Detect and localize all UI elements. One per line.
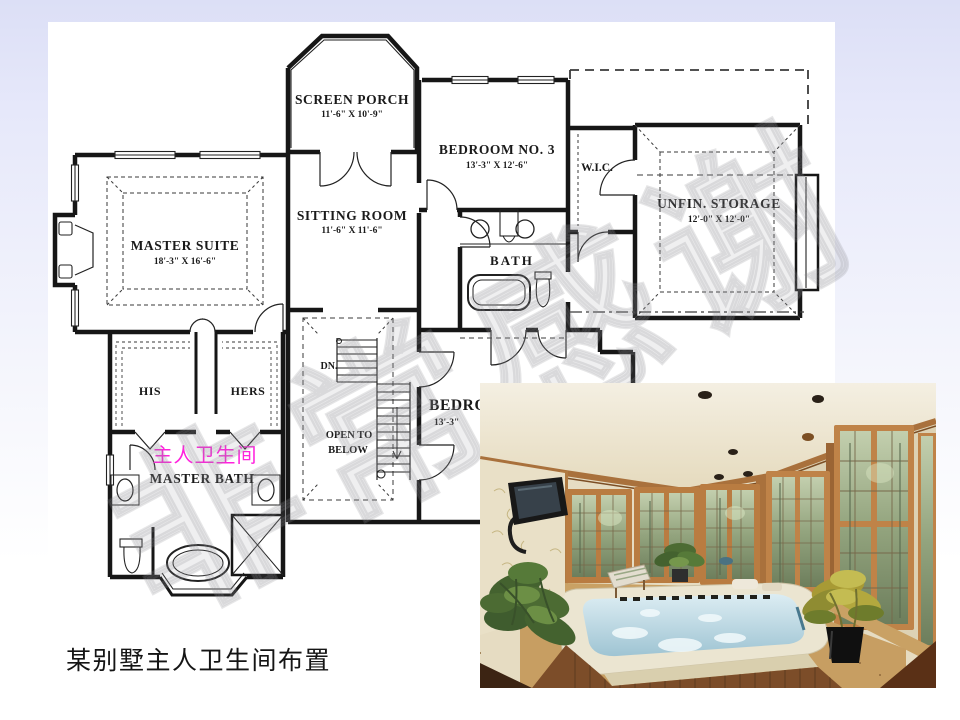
towels: [732, 579, 758, 589]
room-label-unfin-storage: UNFIN. STORAGE: [657, 196, 781, 211]
figurine: [719, 557, 733, 565]
room-label-screen-porch: SCREEN PORCH: [295, 92, 409, 107]
room-label-bath: BATH: [490, 253, 534, 268]
room-dim-master-suite: 18'-3" X 16'-6": [154, 257, 216, 267]
slide-caption: 某别墅主人卫生间布置: [66, 641, 331, 677]
staircase: [337, 338, 411, 480]
shower-icon: [232, 515, 283, 575]
window: [566, 489, 632, 583]
room-label-bedroom3: BEDROOM NO. 3: [439, 142, 555, 157]
room-label-wic: W.I.C.: [581, 162, 613, 174]
sink-icon: [516, 220, 534, 238]
label-open-to: OPEN TO: [326, 430, 373, 441]
sink-icon: [471, 220, 489, 238]
closet-label-his: HIS: [139, 384, 161, 398]
room-dim-screen-porch: 11'-6" X 10'-9": [321, 110, 383, 120]
window: [766, 471, 830, 593]
fireplace-icon: [75, 225, 93, 275]
room-label-master-bath: MASTER BATH: [150, 471, 255, 486]
room-dim-sitting-room: 11'-6" X 11'-6": [321, 226, 382, 236]
closet-label-hers: HERS: [231, 384, 266, 398]
slide: SCREEN PORCH 11'-6" X 10'-9" SITTING ROO…: [0, 0, 960, 720]
stair-label-dn: DN.: [321, 361, 338, 372]
photo-illustration: [480, 383, 936, 688]
room-label-sitting-room: SITTING ROOM: [297, 208, 407, 223]
label-below: BELOW: [328, 445, 368, 456]
photo-master-bath-spa: [480, 383, 936, 688]
room-label-master-suite: MASTER SUITE: [131, 238, 240, 253]
plant-pot: [672, 569, 688, 582]
annotation-master-bathroom-cn: 主人卫生间: [153, 444, 258, 467]
toilet-icon: [536, 279, 550, 307]
window: [700, 484, 760, 585]
window: [918, 433, 936, 648]
room-dim-unfin-storage: 12'-0" X 12'-0": [688, 215, 750, 225]
room-dim-bedroom3: 13'-3" X 12'-6": [466, 161, 528, 171]
toilet-icon: [124, 547, 140, 573]
room-dim-bedroom2: 13'-3": [434, 418, 459, 428]
